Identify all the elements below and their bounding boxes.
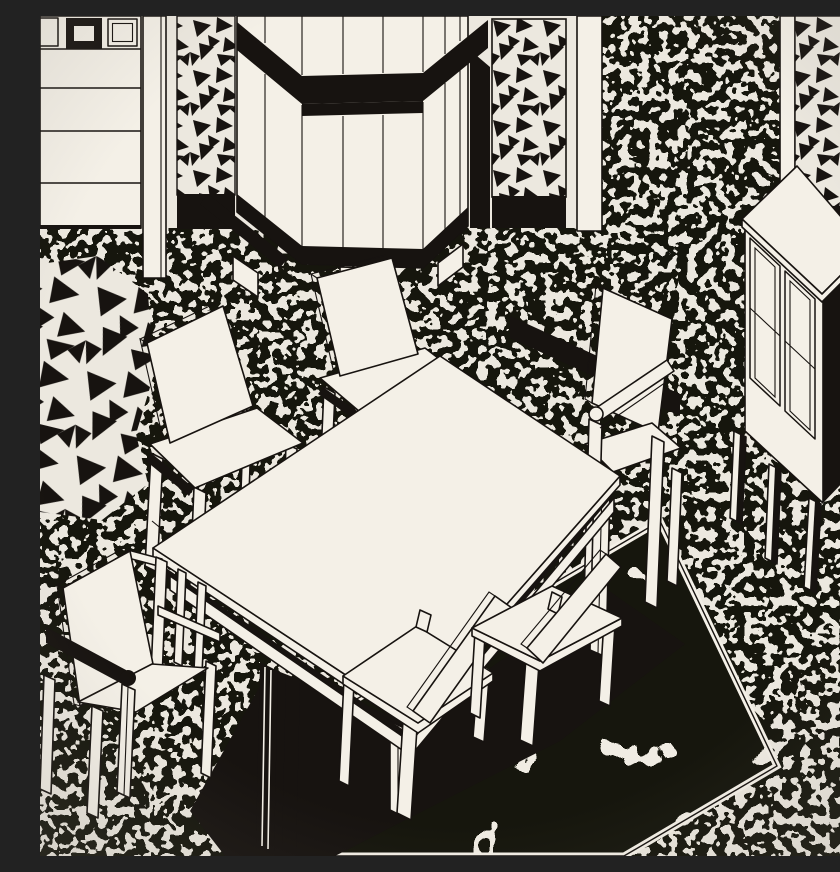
- artwork-canvas: [40, 16, 840, 856]
- artwork: [40, 16, 840, 856]
- photo-vignette: [40, 16, 840, 856]
